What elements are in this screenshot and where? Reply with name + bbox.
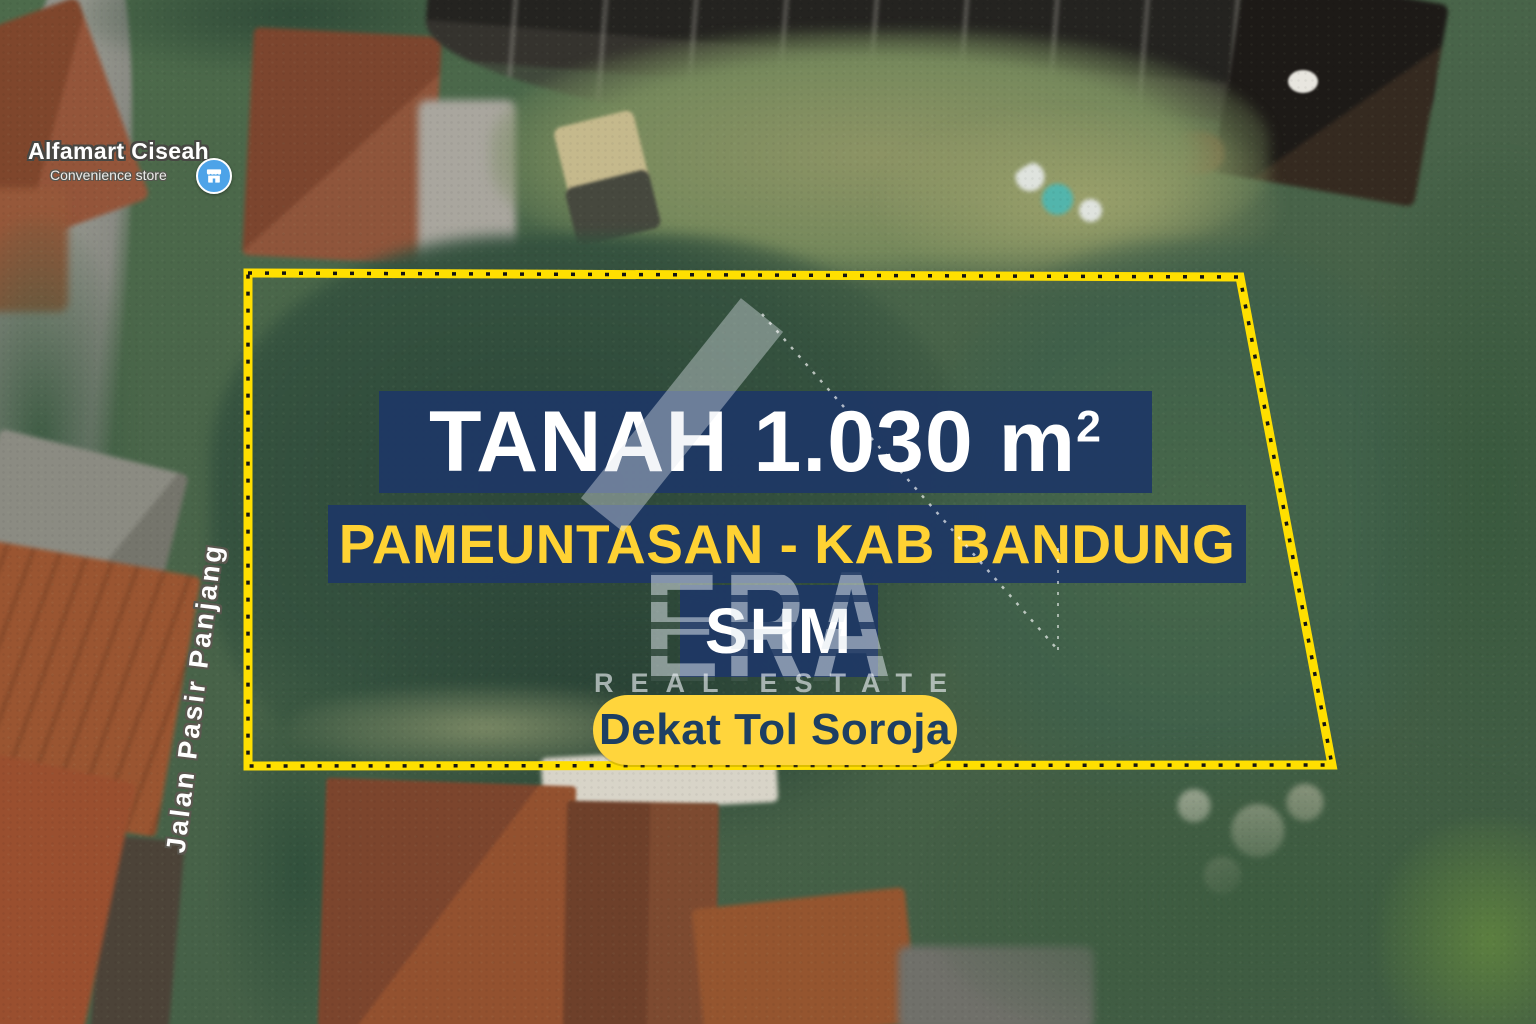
store-icon: [196, 158, 232, 194]
listing-location-banner: PAMEUNTASAN - KAB BANDUNG: [328, 505, 1246, 583]
certificate-label: SHM: [705, 594, 853, 668]
poi-category: Convenience store: [50, 167, 209, 183]
listing-title-banner: TANAH 1.030 m2: [379, 391, 1152, 493]
badge-label: Dekat Tol Soroja: [599, 705, 951, 755]
certificate-box: SHM: [680, 585, 878, 677]
listing-location: PAMEUNTASAN - KAB BANDUNG: [339, 512, 1236, 576]
poi-label-alfamart: Alfamart Ciseah Convenience store: [28, 138, 209, 183]
badge-pill: Dekat Tol Soroja: [593, 695, 957, 765]
listing-title: TANAH 1.030 m2: [429, 399, 1102, 485]
satellite-map: Alfamart Ciseah Convenience store Jalan …: [0, 0, 1536, 1024]
poi-name: Alfamart Ciseah: [28, 138, 209, 165]
superscript-2: 2: [1076, 402, 1102, 451]
